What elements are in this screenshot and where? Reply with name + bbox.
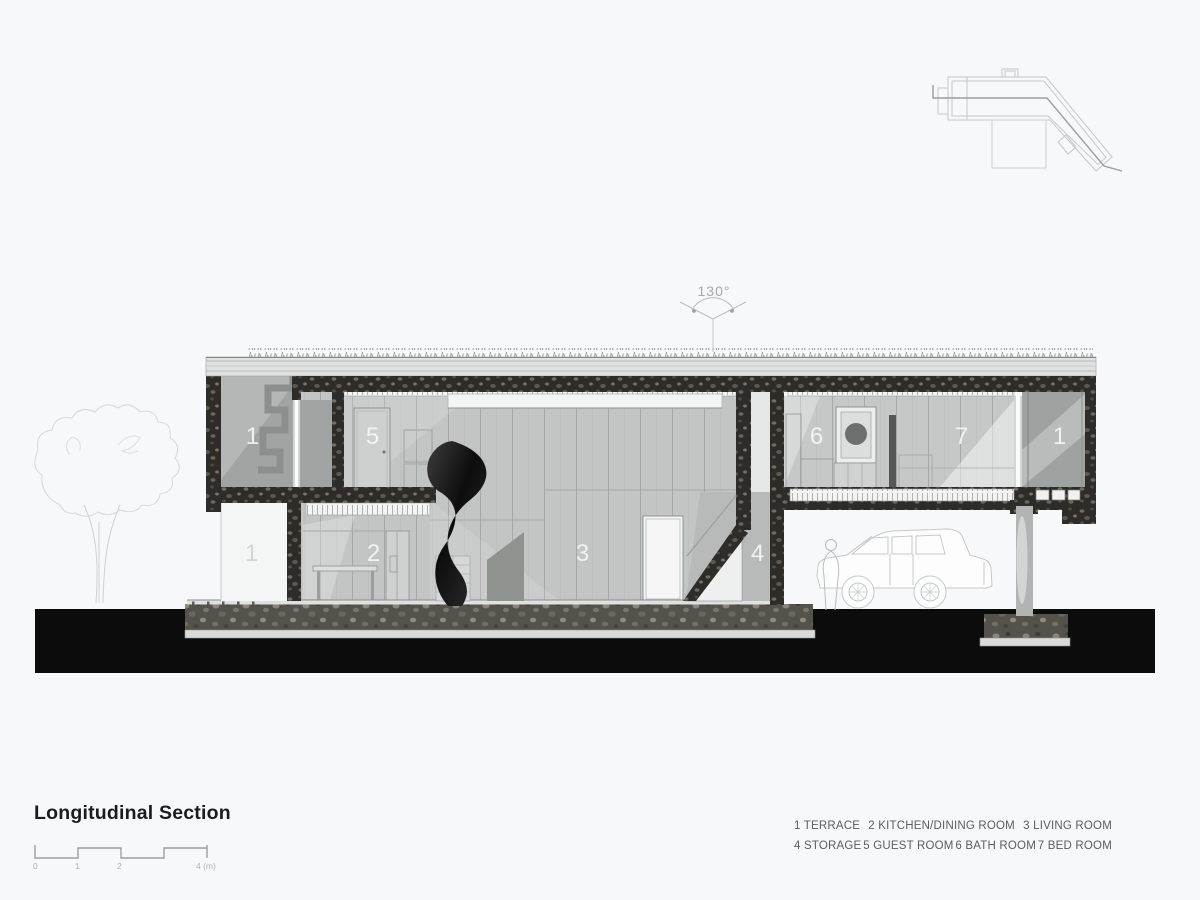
ceiling-recess (448, 394, 722, 408)
angle-annotation-label: 130° (698, 283, 731, 299)
scale-bar (35, 845, 207, 858)
scale-tick-1: 1 (75, 861, 80, 871)
roof (206, 348, 1096, 392)
legend-storage: 4 STORAGE (794, 840, 861, 852)
room-label-bath-room: 6 (810, 423, 824, 451)
legend-row-2: 4 STORAGE 5 GUEST ROOM 6 BATH ROOM 7 BED… (794, 840, 1112, 852)
scale-tick-2: 2 (117, 861, 122, 871)
ground (35, 604, 1155, 673)
living-room-door (643, 516, 683, 602)
section-cut-line (933, 85, 1122, 171)
tree (35, 405, 180, 603)
key-plan (933, 69, 1122, 171)
angle-annotation-symbol (680, 298, 746, 352)
legend-living-room: 3 LIVING ROOM (1023, 820, 1112, 832)
legend-terrace: 1 TERRACE (794, 820, 860, 832)
footing-gravel (984, 614, 1068, 638)
room-legend: 1 TERRACE 2 KITCHEN/DINING ROOM 3 LIVING… (794, 820, 1112, 860)
room-label-terrace-lower-left: 1 (245, 540, 259, 568)
room-label-terrace-upper-left: 1 (246, 423, 260, 451)
column (1010, 500, 1038, 616)
room-label-terrace-upper-right: 1 (1053, 423, 1067, 451)
legend-kitchen-dining: 2 KITCHEN/DINING ROOM (868, 820, 1015, 832)
drawing-title: Longitudinal Section (34, 802, 231, 825)
room-label-kitchen-dining: 2 (367, 540, 381, 568)
partition-post (889, 415, 896, 489)
section-drawing (0, 0, 1200, 900)
legend-guest-room: 5 GUEST ROOM (863, 840, 953, 852)
legend-row-1: 1 TERRACE 2 KITCHEN/DINING ROOM 3 LIVING… (794, 820, 1112, 832)
roof-grass (248, 348, 1093, 358)
scale-tick-0: 0 (33, 861, 38, 871)
bathroom-mirror (836, 407, 876, 463)
room-label-storage: 4 (751, 540, 765, 568)
architectural-sheet: Longitudinal Section 130° 1 5 6 7 1 1 2 … (0, 0, 1200, 900)
scale-tick-4m: 4 (m) (196, 861, 216, 871)
foundation-gravel (185, 604, 813, 630)
room-label-guest-room: 5 (366, 423, 380, 451)
building-section (187, 348, 1096, 616)
car (817, 529, 992, 608)
room-label-living-room: 3 (576, 540, 590, 568)
room-label-bed-room: 7 (955, 423, 969, 451)
legend-bath-room: 6 BATH ROOM (955, 840, 1036, 852)
legend-bed-room: 7 BED ROOM (1038, 840, 1112, 852)
